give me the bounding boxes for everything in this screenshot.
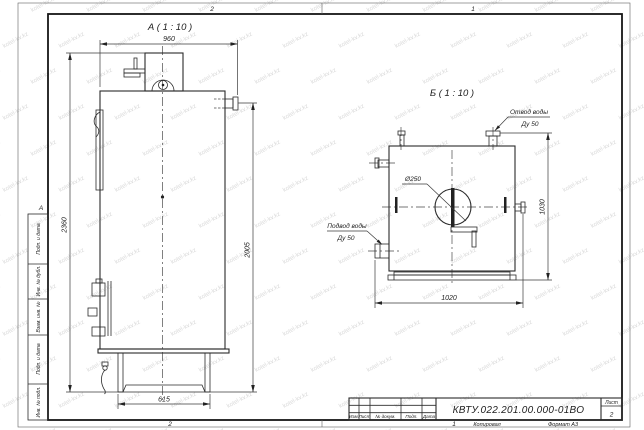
tb-col-data: Дата	[422, 414, 436, 419]
watermark-text: kotel-kv.kz	[338, 31, 365, 49]
dim-value: 2360	[62, 217, 69, 234]
watermark-text: kotel-kv.kz	[394, 31, 421, 49]
stamp-label: Инв. № подл.	[36, 386, 42, 417]
watermark-text: kotel-kv.kz	[170, 319, 197, 337]
watermark-text: kotel-kv.kz	[198, 67, 225, 85]
watermark-text: kotel-kv.kz	[366, 355, 393, 373]
watermark-text: kotel-kv.kz	[422, 211, 449, 229]
watermark-text: kotel-kv.kz	[450, 247, 477, 265]
watermark-text: kotel-kv.kz	[30, 0, 57, 14]
watermark-text: kotel-kv.kz	[590, 67, 617, 85]
watermark-text: kotel-kv.kz	[0, 67, 2, 85]
zone-marker-bottom-left: 2	[167, 421, 172, 428]
watermark-text: kotel-kv.kz	[226, 31, 253, 49]
watermark-text: kotel-kv.kz	[450, 319, 477, 337]
stamp-label: Подп. и дата	[36, 343, 42, 375]
watermark-text: kotel-kv.kz	[142, 283, 169, 301]
watermark-text: kotel-kv.kz	[562, 31, 589, 49]
watermark-text: kotel-kv.kz	[170, 103, 197, 121]
label-text: Подвод воды	[327, 222, 367, 230]
watermark-text: kotel-kv.kz	[478, 67, 505, 85]
zone-marker-top-left: 2	[209, 6, 214, 13]
watermark-text: kotel-kv.kz	[422, 355, 449, 373]
watermark-text: kotel-kv.kz	[282, 31, 309, 49]
watermark-text: kotel-kv.kz	[254, 0, 281, 14]
title-block: Изм. Лист № докум. Подп. Дата КВТУ.022.2…	[349, 398, 622, 428]
dim-value: 2005	[245, 242, 252, 259]
watermark-text: kotel-kv.kz	[394, 247, 421, 265]
zone-marker-side: А	[38, 205, 43, 212]
dim-value: 615	[158, 397, 170, 404]
watermark-text: kotel-kv.kz	[282, 247, 309, 265]
watermark-text: kotel-kv.kz	[58, 175, 85, 193]
watermark-text: kotel-kv.kz	[562, 247, 589, 265]
watermark-text: kotel-kv.kz	[58, 319, 85, 337]
watermark-text: kotel-kv.kz	[478, 211, 505, 229]
watermark-text: kotel-kv.kz	[142, 211, 169, 229]
watermark-layer: kotel-kv.kzkotel-kv.kzkotel-kv.kzkotel-k…	[0, 0, 644, 430]
watermark-text: kotel-kv.kz	[114, 103, 141, 121]
watermark-text: kotel-kv.kz	[198, 283, 225, 301]
left-stamp-strip: Подп. и дата Инв. № дубл. Взам. инв. № П…	[28, 214, 48, 420]
watermark-text: kotel-kv.kz	[282, 391, 309, 409]
watermark-text: kotel-kv.kz	[338, 103, 365, 121]
watermark-text: kotel-kv.kz	[310, 283, 337, 301]
watermark-text: kotel-kv.kz	[590, 139, 617, 157]
view-a-title: А ( 1 : 10 )	[147, 22, 192, 33]
watermark-text: kotel-kv.kz	[254, 67, 281, 85]
tb-col-izm: Изм.	[349, 414, 359, 419]
stamp-label: Взам. инв. №	[36, 301, 42, 333]
watermark-text: kotel-kv.kz	[2, 175, 29, 193]
watermark-text: kotel-kv.kz	[450, 103, 477, 121]
sheet-label: Лист	[604, 400, 618, 406]
watermark-text: kotel-kv.kz	[114, 31, 141, 49]
label-text: Ду 50	[521, 121, 539, 128]
watermark-text: kotel-kv.kz	[142, 0, 169, 14]
watermark-text: kotel-kv.kz	[310, 67, 337, 85]
watermark-text: kotel-kv.kz	[2, 103, 29, 121]
watermark-text: kotel-kv.kz	[58, 103, 85, 121]
watermark-text: kotel-kv.kz	[338, 391, 365, 409]
watermark-text: kotel-kv.kz	[226, 175, 253, 193]
watermark-text: kotel-kv.kz	[254, 355, 281, 373]
watermark-text: kotel-kv.kz	[310, 0, 337, 14]
footer-format: Формат А3	[548, 422, 579, 428]
watermark-text: kotel-kv.kz	[2, 319, 29, 337]
watermark-text: kotel-kv.kz	[590, 283, 617, 301]
dim-value: 960	[163, 36, 175, 43]
watermark-text: kotel-kv.kz	[534, 67, 561, 85]
watermark-text: kotel-kv.kz	[226, 391, 253, 409]
dim-value: 1030	[540, 199, 547, 215]
watermark-text: kotel-kv.kz	[0, 283, 2, 301]
watermark-text: kotel-kv.kz	[2, 247, 29, 265]
watermark-text: kotel-kv.kz	[254, 283, 281, 301]
document-number: КВТУ.022.201.00.000-01ВО	[453, 405, 585, 416]
tb-col-docnum: № докум.	[375, 414, 395, 419]
dimension-height-1030: 1030	[500, 133, 552, 280]
watermark-text: kotel-kv.kz	[170, 391, 197, 409]
watermark-text: kotel-kv.kz	[170, 247, 197, 265]
label-outlet: Отвод воды Ду 50	[495, 108, 550, 131]
watermark-text: kotel-kv.kz	[2, 31, 29, 49]
watermark-text: kotel-kv.kz	[478, 283, 505, 301]
label-text: Ду 50	[337, 235, 355, 242]
watermark-text: kotel-kv.kz	[366, 67, 393, 85]
watermark-text: kotel-kv.kz	[114, 319, 141, 337]
watermark-text: kotel-kv.kz	[478, 139, 505, 157]
watermark-text: kotel-kv.kz	[58, 31, 85, 49]
watermark-text: kotel-kv.kz	[338, 175, 365, 193]
tb-col-podp: Подп.	[405, 414, 417, 419]
tb-col-list: Лист	[358, 414, 371, 419]
watermark-text: kotel-kv.kz	[590, 211, 617, 229]
watermark-text: kotel-kv.kz	[590, 355, 617, 373]
watermark-text: kotel-kv.kz	[198, 355, 225, 373]
watermark-text: kotel-kv.kz	[86, 0, 113, 14]
watermark-text: kotel-kv.kz	[534, 283, 561, 301]
watermark-text: kotel-kv.kz	[422, 0, 449, 14]
watermark-text: kotel-kv.kz	[310, 355, 337, 373]
watermark-text: kotel-kv.kz	[366, 0, 393, 14]
watermark-text: kotel-kv.kz	[30, 355, 57, 373]
label-hole-diameter: Ø250	[402, 176, 427, 184]
watermark-text: kotel-kv.kz	[394, 103, 421, 121]
watermark-text: kotel-kv.kz	[534, 0, 561, 14]
watermark-text: kotel-kv.kz	[282, 103, 309, 121]
watermark-text: kotel-kv.kz	[506, 319, 533, 337]
sheet-number: 2	[609, 412, 614, 419]
watermark-text: kotel-kv.kz	[422, 67, 449, 85]
watermark-text: kotel-kv.kz	[0, 139, 2, 157]
watermark-text: kotel-kv.kz	[226, 319, 253, 337]
watermark-text: kotel-kv.kz	[142, 139, 169, 157]
watermark-text: kotel-kv.kz	[394, 319, 421, 337]
watermark-text: kotel-kv.kz	[506, 247, 533, 265]
watermark-text: kotel-kv.kz	[0, 355, 2, 373]
watermark-text: kotel-kv.kz	[114, 175, 141, 193]
watermark-text: kotel-kv.kz	[114, 247, 141, 265]
stamp-label: Инв. № дубл.	[36, 266, 42, 297]
zone-marker-bottom-right: 1	[452, 421, 456, 428]
watermark-text: kotel-kv.kz	[254, 139, 281, 157]
footer-copied: Копировал	[473, 422, 500, 428]
watermark-text: kotel-kv.kz	[198, 139, 225, 157]
watermark-text: kotel-kv.kz	[30, 139, 57, 157]
watermark-text: kotel-kv.kz	[506, 175, 533, 193]
watermark-text: kotel-kv.kz	[478, 355, 505, 373]
watermark-text: kotel-kv.kz	[142, 355, 169, 373]
watermark-text: kotel-kv.kz	[58, 391, 85, 409]
watermark-text: kotel-kv.kz	[226, 103, 253, 121]
watermark-text: kotel-kv.kz	[0, 211, 2, 229]
watermark-text: kotel-kv.kz	[310, 139, 337, 157]
drawing-sheet: kotel-kv.kzkotel-kv.kzkotel-kv.kzkotel-k…	[0, 0, 644, 430]
watermark-text: kotel-kv.kz	[478, 0, 505, 14]
dim-value: 1020	[441, 295, 457, 302]
watermark-text: kotel-kv.kz	[450, 31, 477, 49]
view-b-title: Б ( 1 : 10 )	[430, 88, 474, 99]
watermark-text: kotel-kv.kz	[338, 319, 365, 337]
watermark-text: kotel-kv.kz	[506, 31, 533, 49]
watermark-text: kotel-kv.kz	[170, 175, 197, 193]
watermark-text: kotel-kv.kz	[2, 391, 29, 409]
stamp-label: Подп. и дата	[36, 223, 42, 255]
watermark-text: kotel-kv.kz	[562, 103, 589, 121]
watermark-text: kotel-kv.kz	[30, 67, 57, 85]
watermark-text: kotel-kv.kz	[254, 211, 281, 229]
watermark-text: kotel-kv.kz	[590, 0, 617, 14]
watermark-text: kotel-kv.kz	[282, 175, 309, 193]
label-text: Отвод воды	[510, 108, 548, 116]
watermark-text: kotel-kv.kz	[338, 247, 365, 265]
view-b: Б ( 1 : 10 )	[327, 88, 552, 308]
watermark-text: kotel-kv.kz	[282, 319, 309, 337]
watermark-text: kotel-kv.kz	[366, 283, 393, 301]
watermark-text: kotel-kv.kz	[562, 175, 589, 193]
watermark-text: kotel-kv.kz	[394, 391, 421, 409]
label-text: Ø250	[404, 176, 421, 183]
watermark-text: kotel-kv.kz	[422, 139, 449, 157]
watermark-text: kotel-kv.kz	[534, 355, 561, 373]
dimension-height-2360: 2360	[62, 53, 146, 392]
watermark-text: kotel-kv.kz	[86, 355, 113, 373]
zone-marker-top-right: 1	[471, 6, 475, 13]
watermark-text: kotel-kv.kz	[198, 211, 225, 229]
watermark-text: kotel-kv.kz	[562, 319, 589, 337]
watermark-text: kotel-kv.kz	[0, 0, 2, 14]
watermark-text: kotel-kv.kz	[58, 247, 85, 265]
